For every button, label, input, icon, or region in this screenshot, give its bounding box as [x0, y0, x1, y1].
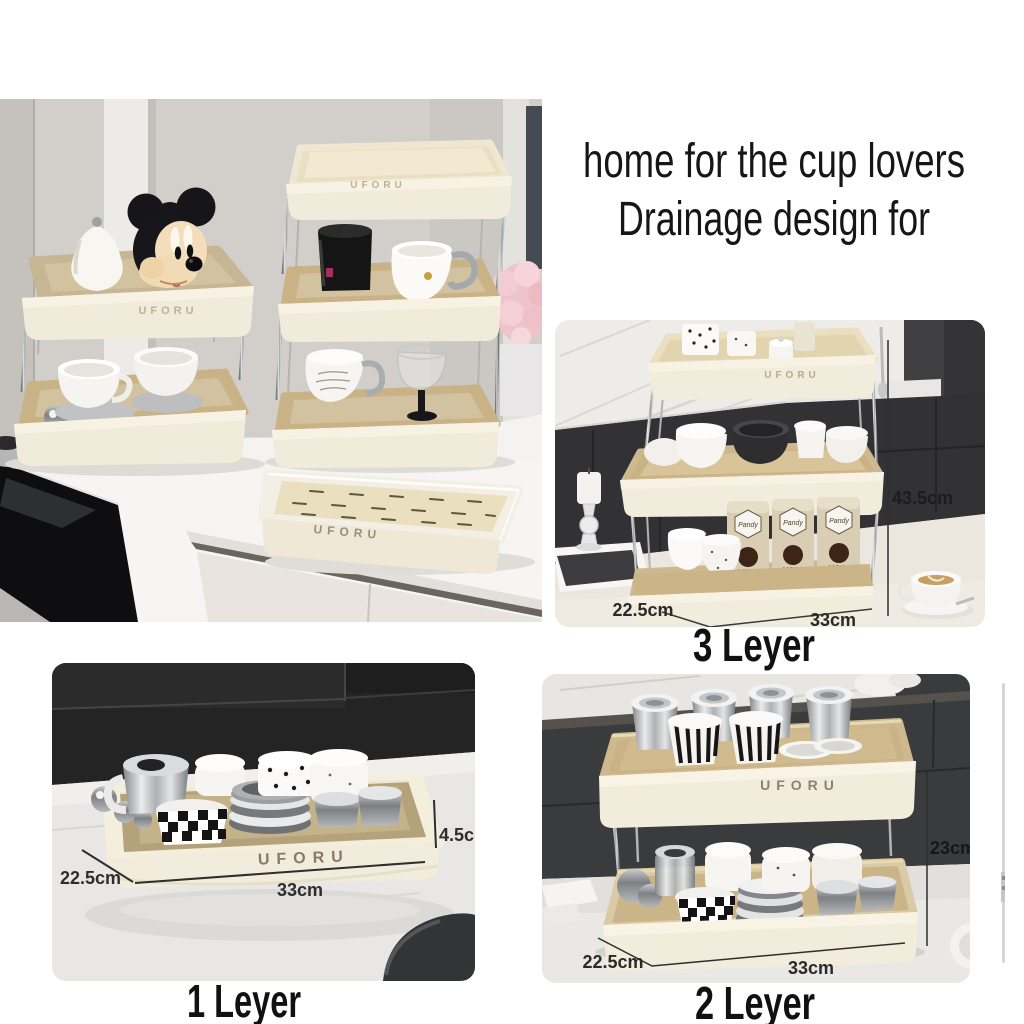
svg-text:3 Leyer: 3 Leyer	[693, 619, 815, 671]
svg-text:23cm: 23cm	[930, 838, 976, 858]
svg-text:Pandy: Pandy	[783, 520, 803, 527]
svg-text:22.5cm: 22.5cm	[582, 952, 643, 972]
svg-text:UFORU: UFORU	[258, 848, 350, 868]
svg-text:33cm: 33cm	[277, 880, 323, 900]
svg-text:UFORU: UFORU	[138, 305, 197, 317]
svg-text:22.5cm: 22.5cm	[60, 868, 121, 888]
svg-text:UFORU: UFORU	[760, 777, 840, 793]
svg-text:1 Leyer: 1 Leyer	[187, 975, 301, 1024]
svg-text:22.5cm: 22.5cm	[612, 600, 673, 620]
svg-text:43.5cm: 43.5cm	[892, 488, 953, 508]
svg-text:home for the cup lovers: home for the cup lovers	[583, 135, 965, 188]
svg-text:Drainage design for: Drainage design for	[618, 193, 930, 246]
svg-text:UFORU: UFORU	[764, 370, 820, 381]
svg-text:UFORU: UFORU	[350, 180, 406, 191]
svg-text:33cm: 33cm	[788, 958, 834, 978]
svg-text:Pandy: Pandy	[738, 522, 758, 529]
svg-text:4.5cm: 4.5cm	[439, 825, 490, 845]
svg-text:Pandy: Pandy	[829, 518, 849, 525]
svg-text:33cm: 33cm	[810, 610, 856, 630]
svg-text:2 Leyer: 2 Leyer	[695, 977, 815, 1024]
